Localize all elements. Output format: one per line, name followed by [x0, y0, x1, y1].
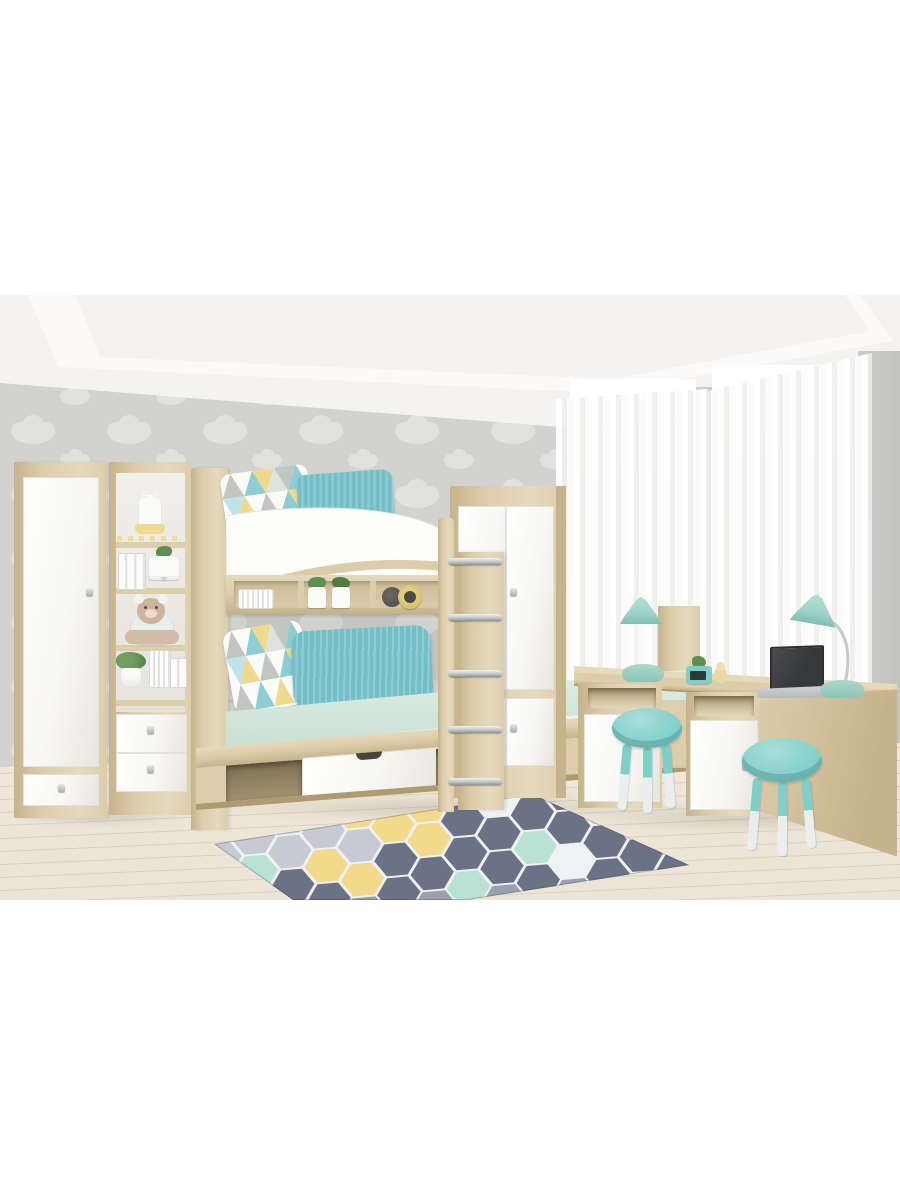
- bed-cubby-left: [226, 760, 302, 802]
- shelf-divider: [370, 581, 376, 608]
- teddy-bear-eye: [144, 606, 147, 609]
- screenshot: [0, 0, 900, 1200]
- ladder-rung: [448, 558, 502, 565]
- cat-ear: [152, 490, 160, 498]
- dog-planter-legs: [153, 577, 175, 587]
- wardrobe-lower-door-right: [506, 698, 554, 766]
- desk-niche: [694, 696, 754, 716]
- storage-boxes: [238, 589, 274, 609]
- garland: [117, 536, 183, 541]
- door-handle: [510, 588, 517, 596]
- alarm-clock-face: [404, 591, 416, 603]
- left-wardrobe: [14, 462, 107, 818]
- stool-leg: [778, 782, 787, 856]
- wardrobe-door: [23, 477, 99, 767]
- ladder-right-rail: [458, 552, 504, 810]
- wardrobe-side-edge: [556, 486, 566, 798]
- drawer-handle: [147, 765, 154, 773]
- pencil-cup-clock: [690, 671, 706, 680]
- room-photo: [0, 295, 900, 900]
- duck-figurine-head: [716, 662, 725, 671]
- teddy-bear-ear: [134, 594, 144, 604]
- door-handle: [86, 588, 93, 596]
- ladder-rung: [448, 778, 502, 785]
- cat-planter: [308, 587, 326, 608]
- teddy-bear-muzzle: [145, 609, 157, 618]
- stool-right-seat: [742, 738, 822, 782]
- teddy-bear-paws: [125, 630, 179, 644]
- plant-pot: [121, 668, 141, 686]
- ladder-rung: [448, 614, 502, 621]
- desk-lamp-left-stand: [628, 624, 658, 668]
- ladder-rung: [448, 670, 502, 677]
- small-books: [170, 658, 187, 688]
- stool-leg: [643, 747, 652, 813]
- shelf-divider: [298, 581, 304, 608]
- bookshelf: [109, 462, 192, 815]
- teddy-bear-ear: [158, 594, 168, 604]
- shelf-board: [116, 542, 185, 548]
- picture-books: [118, 553, 146, 590]
- cat-skirt: [135, 524, 165, 534]
- door-handle: [510, 724, 517, 732]
- canisters: [149, 650, 171, 688]
- desk-lamp-right-base: [820, 680, 864, 698]
- cat-planter: [332, 587, 350, 608]
- stool-left-seat: [612, 708, 682, 748]
- desk-lamp-left-base: [622, 664, 664, 682]
- drawer-handle: [58, 784, 65, 792]
- ladder-rung: [448, 726, 502, 733]
- drawer-handle: [147, 726, 154, 734]
- shelf-board: [116, 700, 185, 706]
- cat-ear: [140, 490, 148, 498]
- wardrobe-door-right: [506, 506, 554, 690]
- teddy-bear-eye: [155, 606, 158, 609]
- desk-niche: [588, 688, 656, 708]
